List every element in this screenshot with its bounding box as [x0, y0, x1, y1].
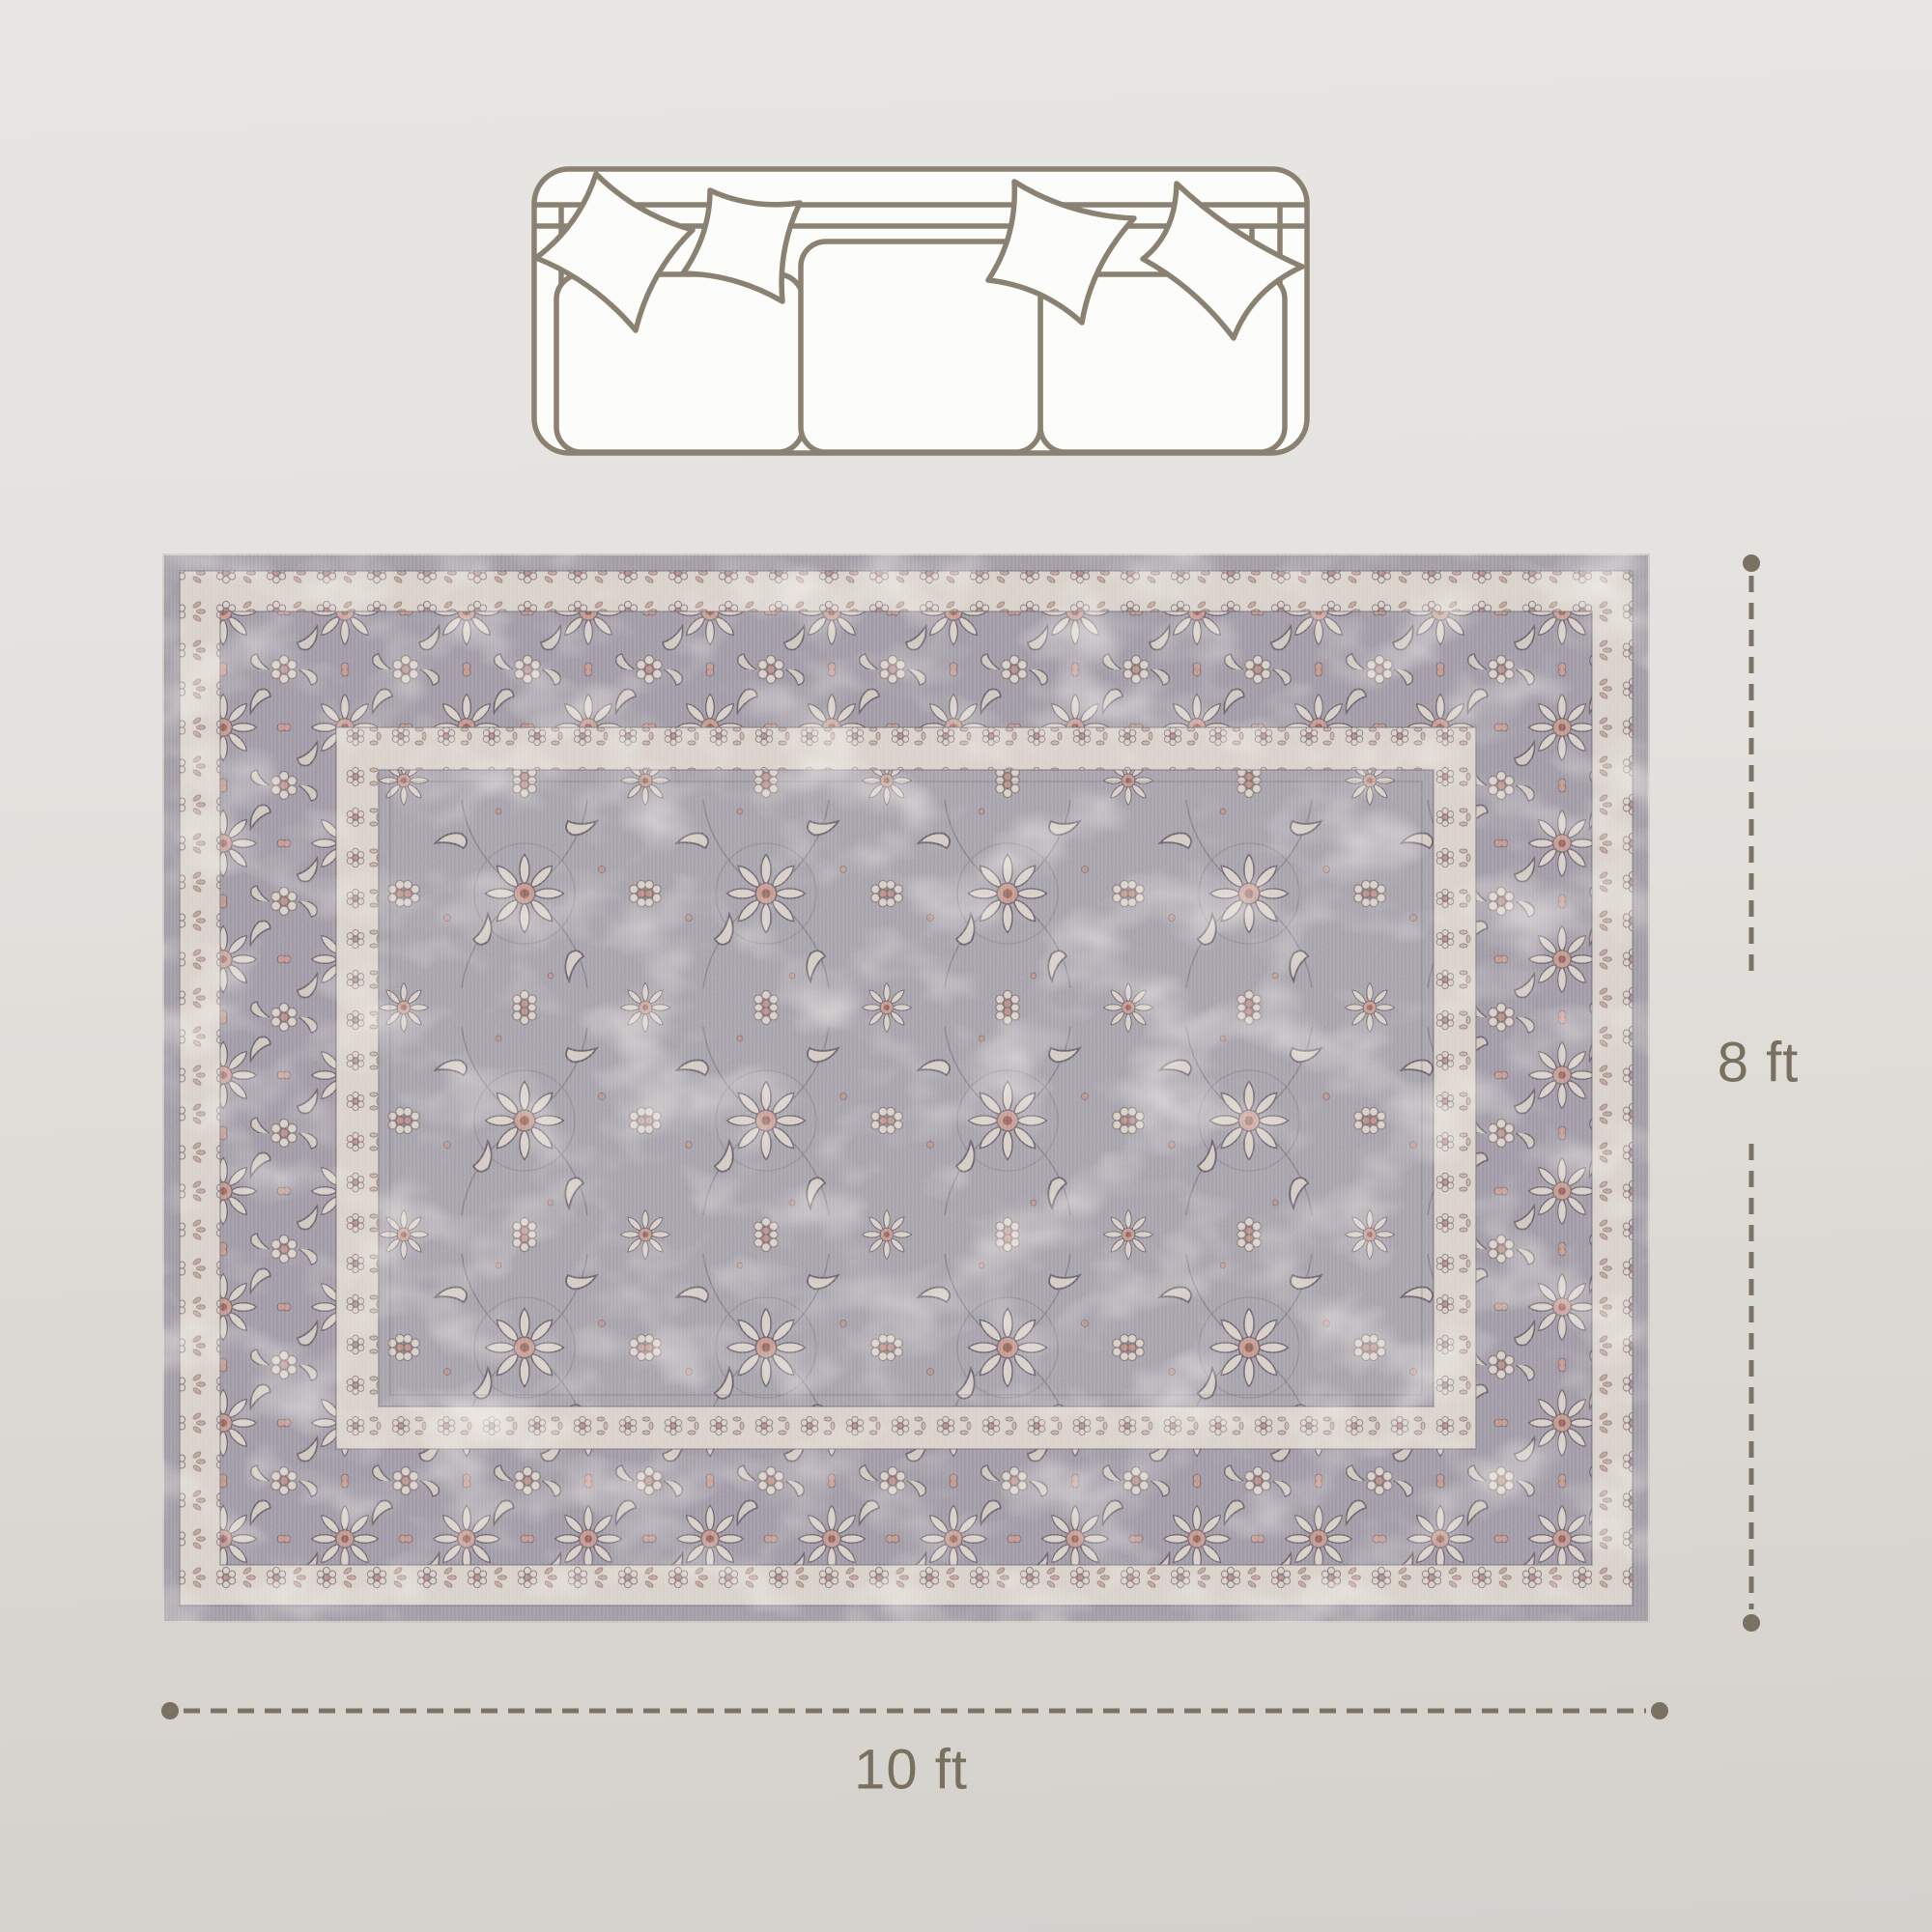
- dimension-endpoint-dot: [1743, 554, 1760, 572]
- dimension-endpoint-dot: [161, 1702, 179, 1719]
- product-dimension-diagram: 8 ft 10 ft: [0, 0, 1932, 1932]
- dimension-endpoint-dot: [1651, 1702, 1668, 1719]
- dimension-endpoint-dot: [1743, 1614, 1760, 1632]
- width-dimension-label: 10 ft: [854, 1738, 968, 1803]
- dimension-annotations: [0, 0, 1932, 1932]
- height-dimension-label: 8 ft: [1718, 1031, 1800, 1095]
